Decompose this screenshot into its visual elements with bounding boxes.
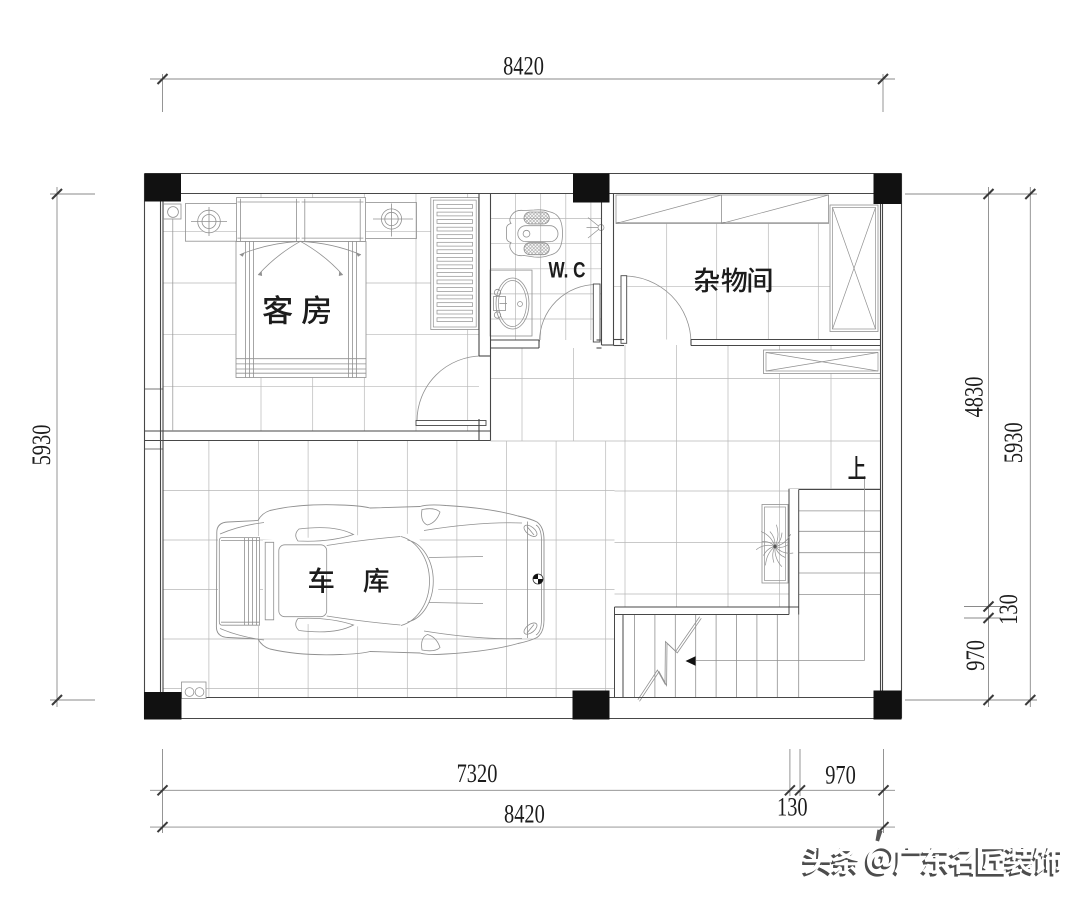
svg-text:130: 130 [994, 594, 1023, 625]
svg-text:130: 130 [777, 793, 808, 822]
svg-text:4830: 4830 [960, 377, 989, 418]
svg-text:970: 970 [961, 640, 990, 671]
svg-text:5930: 5930 [27, 425, 56, 466]
svg-text:8420: 8420 [504, 800, 545, 829]
svg-text:7320: 7320 [457, 759, 498, 788]
svg-text:5930: 5930 [999, 422, 1028, 463]
svg-text:970: 970 [825, 761, 856, 790]
svg-text:W. C: W. C [549, 258, 586, 283]
svg-text:8420: 8420 [503, 51, 544, 80]
